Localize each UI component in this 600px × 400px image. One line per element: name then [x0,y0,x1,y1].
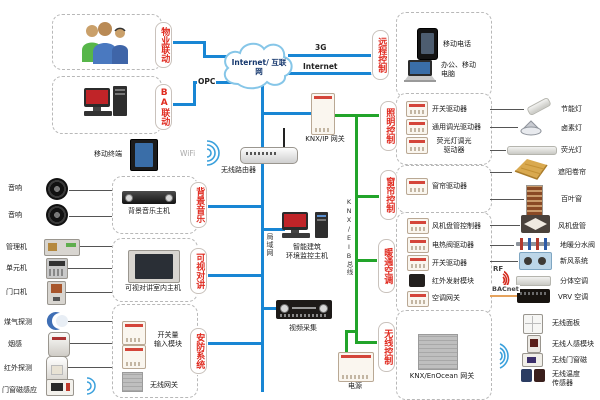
intercom-line [80,246,112,247]
curtain-actuator-icon [406,178,428,195]
wireless-panel-icon [523,314,543,334]
manager-label: 管理机 [6,243,27,252]
ba-workstation-icon [82,84,130,126]
awning-shade-icon [513,157,549,182]
load-line [490,109,524,110]
load-line [490,127,518,128]
load-line [490,172,512,173]
monitor-host-icon [282,212,332,242]
hvac-switch-actuator-label: 开关驱动器 [432,259,467,268]
tab-security: 安防系统 [190,328,207,374]
split-ac-icon [516,276,551,286]
wireless-temp-sensor-icon [534,369,545,382]
power-supply-label: 电源 [348,382,362,391]
dimmer-actuator-icon [406,119,428,135]
lan-music-branch [201,205,261,208]
cfl-lamp-label: 节能灯 [561,105,582,114]
gas-detector-label: 煤气探测 [4,318,32,327]
vrv-ac-label: VRV 空调 [558,293,588,302]
knx-ip-gateway-label: KNX/IP 网关 [297,135,353,144]
sensor-line [68,367,112,368]
remote-control-box [396,12,492,98]
load-line [490,150,506,151]
intercom-line [66,292,112,293]
enocean-gateway-icon [418,334,458,370]
3g-line [288,54,374,57]
wireless-temp-sensor-label: 无线温度 传感器 [552,370,588,388]
manifold-icon [515,237,551,251]
knx-bus-trunk [355,114,358,344]
speaker-line [69,190,112,191]
ir-transmitter-label: 红外发射模块 [432,277,474,286]
intercom-host-icon [128,250,180,283]
tab-intercom: 可视对讲 [190,248,207,294]
door-station-label: 门口机 [6,288,27,297]
wireless-temp-sensor-icon [521,369,532,382]
smoke-detector-icon [48,332,70,357]
lan-trunk-line [261,86,264,392]
intercom-line [68,268,112,269]
gas-detector-icon [46,311,70,331]
mobile-phone-icon [417,28,438,60]
ir-transmitter-icon [409,274,425,287]
awning-shade-label: 遮阳卷帘 [558,168,586,177]
blind-label: 百叶窗 [561,195,582,204]
input-module-icon [122,345,146,369]
fan-coil-controller-icon [407,218,429,234]
knx-power-branch [345,330,348,352]
load-line [490,199,524,200]
lan-security-branch [201,342,261,345]
door-magnet-wireless-icon [84,376,100,396]
load-line [490,261,518,262]
sensor-line [70,343,112,344]
fresh-air-icon [519,252,552,270]
valve-actuator-label: 电热阀驱动器 [432,241,474,250]
fresh-air-label: 新风系统 [560,257,588,266]
curtain-actuator-label: 窗帘驱动器 [432,182,467,191]
monitor-host-label: 智能建筑 环境监控主机 [277,243,337,261]
switch-actuator-icon [406,101,428,117]
infrared-detector-label: 红外探测 [4,364,32,373]
manifold-label: 地暖分水阀 [560,241,595,250]
laptop-icon [403,60,437,83]
router-antenna [283,128,285,148]
internet-label: Internet [302,62,339,71]
tab-music: 背景音乐 [190,182,207,228]
fluorescent-tube-icon [507,146,557,155]
wifi-waves-icon [204,142,220,164]
dimmer-actuator-label: 通用调光驱动器 [432,123,481,132]
ac-gateway-icon [407,291,429,307]
bacnet-label: BACnet [491,285,520,293]
music-box [112,176,198,234]
door-magnet-icon [46,379,74,396]
valve-actuator-icon [407,237,429,253]
tab-lighting: 照明控制 [380,101,397,151]
input-module-label: 开关量 输入模块 [150,331,186,349]
manager-station-icon [44,239,80,256]
rf-label: RF [492,265,504,273]
speaker-icon [46,178,68,200]
lan-label: 局域网 [265,233,275,257]
security-wireless-gateway-icon [122,372,143,392]
mobile-phone-label: 移动电话 [443,40,471,49]
wireless-waves-icon [496,344,514,368]
wireless-motion-label: 无线人感模块 [552,340,594,349]
lan-intercom-branch [201,274,261,277]
intercom-host-label: 可视对讲室内主机 [116,284,190,293]
wireless-door-magnet-icon [522,353,543,367]
unit-label: 单元机 [6,264,27,273]
speaker1-label: 音响 [8,184,22,193]
tab-property-linkage: 物业联动 [155,22,172,68]
door-magnet-label: 门窗磁感应 [2,386,37,395]
wireless-motion-icon [527,335,541,353]
speaker-line [69,216,112,217]
speaker-icon [46,204,68,226]
wireless-door-magnet-label: 无线门窗磁 [552,356,587,365]
video-capture-label: 视频采集 [289,324,317,333]
knx-system-diagram: 局域网 KNX/EIB总线 3G Internet OPC WiFi Inter… [0,0,600,400]
mobile-terminal-label: 移动终端 [94,150,122,159]
property-link-line [170,41,206,44]
hvac-switch-actuator-icon [407,255,429,271]
tab-hvac: 暖通空调 [378,239,395,293]
input-module-icon [122,321,146,345]
knx-wireless-branch [357,341,380,344]
wireless-router-icon [240,147,298,164]
knx-curtain-branch [357,195,382,198]
speaker2-label: 音响 [8,211,22,220]
wireless-panel-label: 无线面板 [552,319,580,328]
power-supply-icon [338,352,374,382]
sensor-line [68,321,112,322]
security-wireless-gateway-label: 无线网关 [150,381,178,390]
knx-hvac-branch [357,259,380,262]
smoke-detector-label: 烟感 [8,340,22,349]
tablet-icon [130,139,158,171]
halogen-lamp-icon [519,119,543,136]
fan-coil-label: 风机盘管 [558,222,586,231]
opc-label: OPC [197,77,216,86]
people-icon [78,20,130,64]
load-line [490,245,514,246]
music-host-label: 背景音乐主机 [119,207,179,216]
bacnet-line [490,295,517,297]
load-line [490,225,520,226]
halogen-lamp-label: 卤素灯 [561,124,582,133]
fan-coil-controller-label: 风机盘管控制器 [432,222,481,231]
door-station-icon [47,281,66,305]
tab-remote-control: 远程控制 [372,30,389,80]
router-label: 无线路由器 [221,166,256,175]
fluorescent-label: 荧光灯 [561,146,582,155]
ac-gateway-label: 空调网关 [432,294,460,303]
vrv-ac-icon [517,289,550,303]
knx-ip-gateway-icon [311,93,335,135]
wifi-label: WiFi [179,149,196,158]
music-host-icon [122,191,176,204]
fan-coil-icon [521,215,550,233]
ba-link-line [193,82,196,106]
fl-dimmer-icon [406,137,428,154]
lan-to-knx-gateway-line [263,112,311,115]
3g-label: 3G [314,43,327,52]
unit-station-icon [46,258,68,279]
internet-cloud-label: Internet/ 互联网 [228,58,290,77]
switch-actuator-label: 开关驱动器 [432,105,467,114]
internet-line [288,72,374,75]
enocean-gateway-label: KNX/EnOcean 网关 [398,372,486,381]
knx-bus-label: KNX/EIB总线 [344,198,354,276]
blind-icon [526,185,543,216]
cfl-lamp-icon [526,97,551,116]
tab-wireless: 无线控制 [378,322,395,372]
fl-dimmer-label: 荧光灯调光 驱动器 [430,137,478,155]
tab-ba-linkage: BA联动 [155,84,172,130]
video-capture-icon [276,300,332,319]
tab-curtain: 窗帘控制 [380,170,397,220]
split-ac-label: 分体空调 [560,277,588,286]
laptop-label: 办公、移动 电脑 [441,61,481,79]
